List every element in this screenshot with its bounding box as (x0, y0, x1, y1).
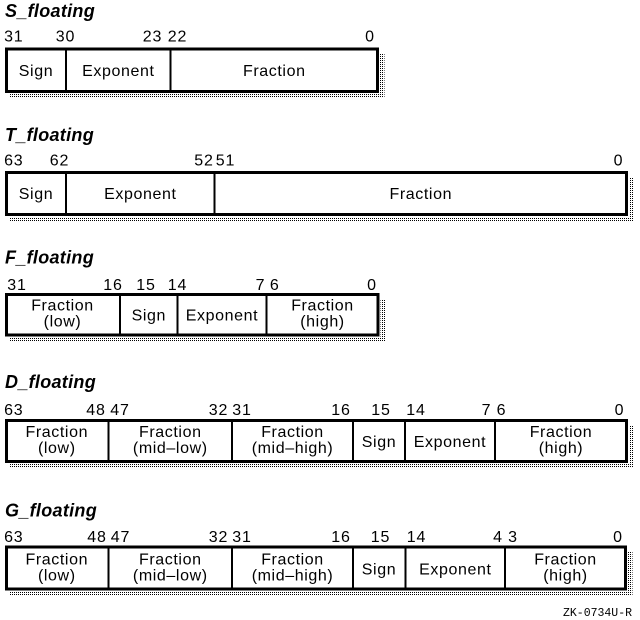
svg-text:D_floating: D_floating (5, 372, 96, 392)
svg-text:22: 22 (168, 29, 187, 46)
svg-text:Exponent: Exponent (104, 186, 176, 203)
svg-text:Sign: Sign (362, 434, 396, 451)
svg-text:14: 14 (407, 529, 426, 546)
svg-text:Fraction: Fraction (291, 298, 354, 315)
svg-text:30: 30 (56, 29, 75, 46)
svg-text:(mid–low): (mid–low) (133, 568, 208, 585)
svg-text:G_floating: G_floating (5, 501, 97, 521)
svg-text:Exponent: Exponent (419, 562, 491, 579)
svg-text:Fraction: Fraction (139, 552, 202, 569)
svg-text:Sign: Sign (132, 308, 166, 325)
svg-text:16: 16 (331, 402, 350, 419)
svg-text:(high): (high) (300, 314, 345, 331)
svg-text:T_floating: T_floating (5, 125, 94, 145)
svg-text:63: 63 (4, 153, 23, 170)
svg-text:16: 16 (331, 529, 350, 546)
svg-text:(mid–high): (mid–high) (252, 440, 334, 457)
svg-text:31: 31 (4, 29, 23, 46)
svg-text:14: 14 (168, 277, 187, 294)
svg-text:Fraction: Fraction (389, 186, 452, 203)
svg-text:Fraction: Fraction (25, 552, 88, 569)
svg-text:0: 0 (365, 29, 375, 46)
svg-text:Fraction: Fraction (530, 424, 593, 441)
svg-text:23: 23 (143, 29, 162, 46)
svg-text:6: 6 (270, 277, 280, 294)
svg-text:S_floating: S_floating (5, 1, 95, 21)
svg-text:(low): (low) (38, 440, 76, 457)
svg-text:32: 32 (209, 529, 228, 546)
svg-text:(low): (low) (38, 568, 76, 585)
svg-text:0: 0 (613, 529, 623, 546)
svg-text:(low): (low) (44, 314, 82, 331)
svg-text:Exponent: Exponent (414, 434, 486, 451)
svg-text:31: 31 (232, 402, 251, 419)
svg-text:Fraction: Fraction (534, 552, 597, 569)
svg-text:Fraction: Fraction (243, 63, 306, 80)
svg-text:(high): (high) (539, 440, 584, 457)
svg-text:Exponent: Exponent (82, 63, 154, 80)
svg-text:52: 52 (194, 153, 213, 170)
svg-text:(high): (high) (543, 568, 588, 585)
svg-text:Fraction: Fraction (139, 424, 202, 441)
svg-text:Fraction: Fraction (25, 424, 88, 441)
svg-text:6: 6 (497, 402, 507, 419)
svg-text:31: 31 (232, 529, 251, 546)
svg-text:0: 0 (367, 277, 377, 294)
svg-text:7: 7 (256, 277, 266, 294)
svg-text:Exponent: Exponent (186, 308, 258, 325)
svg-text:Fraction: Fraction (31, 298, 94, 315)
svg-text:Fraction: Fraction (261, 552, 324, 569)
svg-text:4: 4 (493, 529, 503, 546)
svg-text:47: 47 (110, 402, 129, 419)
svg-text:(mid–high): (mid–high) (252, 568, 334, 585)
svg-text:ZK-0734U-R: ZK-0734U-R (563, 607, 632, 620)
svg-text:Sign: Sign (19, 63, 53, 80)
svg-text:0: 0 (614, 153, 624, 170)
svg-text:F_floating: F_floating (5, 248, 94, 268)
svg-text:Fraction: Fraction (261, 424, 324, 441)
svg-text:(mid–low): (mid–low) (133, 440, 208, 457)
svg-text:47: 47 (111, 529, 130, 546)
svg-text:48: 48 (87, 529, 106, 546)
svg-text:15: 15 (371, 529, 390, 546)
svg-text:32: 32 (209, 402, 228, 419)
svg-text:15: 15 (136, 277, 155, 294)
svg-text:51: 51 (216, 153, 235, 170)
svg-text:7: 7 (482, 402, 492, 419)
svg-text:15: 15 (371, 402, 390, 419)
svg-text:48: 48 (86, 402, 105, 419)
svg-text:31: 31 (7, 277, 26, 294)
svg-text:63: 63 (4, 529, 23, 546)
svg-text:14: 14 (406, 402, 425, 419)
svg-text:Sign: Sign (19, 186, 53, 203)
svg-text:Sign: Sign (362, 562, 396, 579)
svg-text:62: 62 (50, 153, 69, 170)
svg-text:3: 3 (508, 529, 518, 546)
svg-text:16: 16 (103, 277, 122, 294)
svg-text:63: 63 (4, 402, 23, 419)
svg-text:0: 0 (615, 402, 625, 419)
